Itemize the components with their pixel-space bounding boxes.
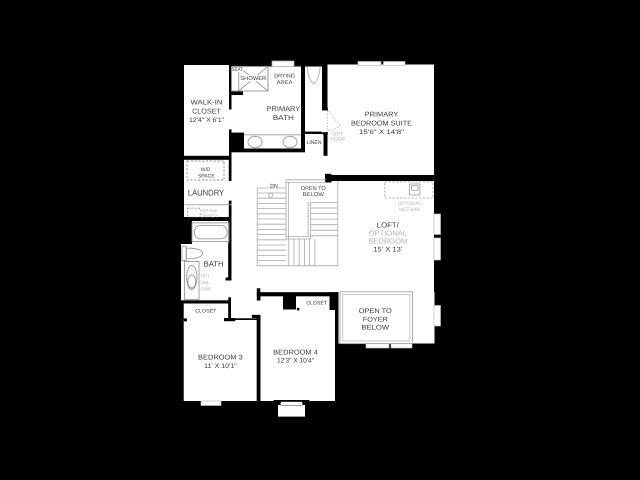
svg-text:12'4" X 6'1": 12'4" X 6'1" [189,117,225,124]
svg-text:SEAT: SEAT [231,67,243,73]
svg-text:BELOW: BELOW [303,192,325,198]
svg-text:DBL: DBL [201,280,210,286]
svg-text:15' X 13': 15' X 13' [373,247,402,254]
svg-text:BATH: BATH [273,115,294,122]
svg-text:OPEN TO: OPEN TO [301,186,327,192]
svg-text:PRIMARY: PRIMARY [365,111,399,118]
svg-text:11' X 10'1": 11' X 10'1" [204,363,237,370]
svg-text:FOYER: FOYER [363,316,388,323]
svg-text:BELOW: BELOW [361,325,390,332]
svg-text:DOOR: DOOR [331,137,346,143]
svg-text:BEDROOM 4: BEDROOM 4 [273,349,318,356]
svg-text:BEDROOM: BEDROOM [368,236,407,245]
svg-text:WET BAR: WET BAR [399,207,420,213]
svg-text:PRIMARY: PRIMARY [267,106,301,113]
svg-text:WALK-IN: WALK-IN [191,100,223,107]
svg-text:SHOWER: SHOWER [240,76,266,82]
svg-text:SINK: SINK [201,287,212,293]
svg-text:BATH: BATH [204,260,224,269]
svg-text:CLOSET: CLOSET [306,301,328,307]
svg-text:BEDROOM 3: BEDROOM 3 [198,355,243,362]
svg-text:LINEN: LINEN [307,140,322,146]
svg-text:LAUNDRY: LAUNDRY [188,188,225,198]
svg-text:W/D: W/D [201,167,211,173]
svg-text:OPEN TO: OPEN TO [359,308,392,315]
svg-text:AREA: AREA [277,80,293,86]
svg-text:DRYING: DRYING [274,73,295,79]
svg-text:CABINETS: CABINETS [201,213,218,218]
svg-text:OPT: OPT [201,274,210,280]
svg-text:CLOSET: CLOSET [192,109,222,116]
svg-text:SPACE: SPACE [198,173,216,179]
svg-text:15'6" X 14'8": 15'6" X 14'8" [359,129,405,136]
svg-text:BEDROOM SUITE: BEDROOM SUITE [351,120,412,127]
svg-text:DN: DN [270,183,278,189]
svg-text:CLOSET: CLOSET [195,309,217,315]
svg-text:12'3" X 10'4": 12'3" X 10'4" [277,358,315,365]
